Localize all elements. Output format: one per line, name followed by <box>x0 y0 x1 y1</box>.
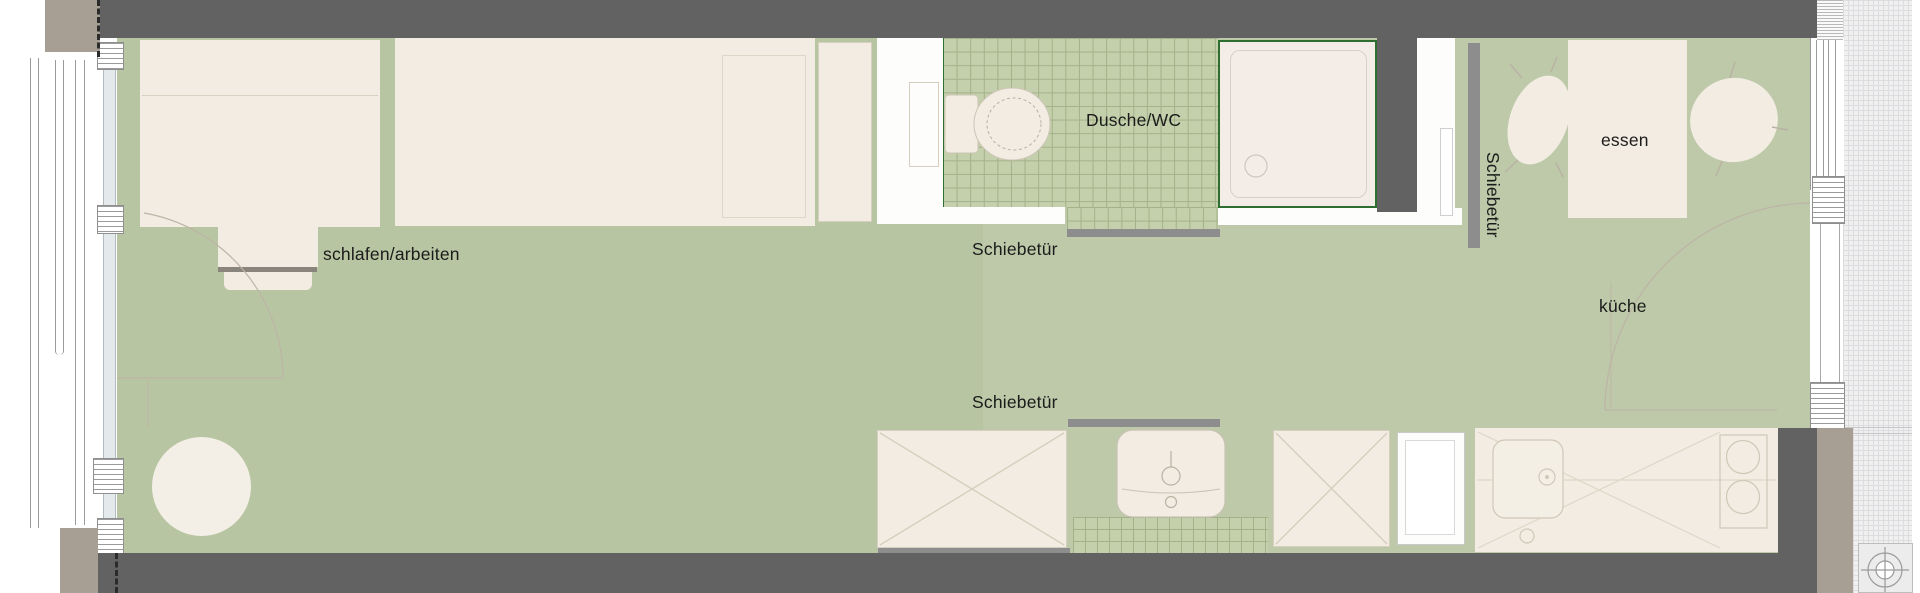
desk-edge-bar <box>218 267 317 272</box>
wall-kitchen-corner <box>1778 428 1817 593</box>
door-hardware-bottom <box>1810 382 1845 432</box>
wall-taupe-bottom-right <box>1817 428 1853 593</box>
ledge-left <box>877 207 1065 224</box>
room-label-kueche: küche <box>1599 296 1647 317</box>
desk <box>218 227 318 267</box>
window-outer-frame-left <box>30 58 39 528</box>
wall-taupe-top-left <box>45 0 100 52</box>
door-label-schiebetuer-bottom: Schiebetür <box>972 392 1058 413</box>
paving-line-1 <box>1843 427 1912 428</box>
room-label-essen: essen <box>1601 130 1649 151</box>
sliding-door-vertical <box>1468 43 1480 248</box>
window-hardware-2 <box>97 205 124 234</box>
expansion-joint-bottom <box>115 553 119 593</box>
closet-panel <box>818 42 872 222</box>
kitchen-counter <box>1475 428 1778 552</box>
sliding-door-top <box>1067 229 1220 237</box>
bathroom-tile-floor-extension <box>1067 207 1218 229</box>
wardrobe-unit-panel <box>722 55 806 218</box>
dining-table <box>1568 40 1687 218</box>
wall-taupe-bottom-left <box>60 528 98 593</box>
room-label-dusche-wc: Dusche/WC <box>1086 110 1181 131</box>
door-label-schiebetuer-vertical: Schiebetür <box>1482 152 1503 238</box>
exterior-paving <box>1843 0 1912 593</box>
door-label-schiebetuer-top: Schiebetür <box>972 239 1058 260</box>
sliding-door-pocket-rail <box>1440 128 1453 216</box>
desk-chair <box>224 272 312 290</box>
window-hardware-1 <box>97 42 124 70</box>
fridge-cabinet-door <box>1405 440 1455 535</box>
wall-bottom <box>98 553 1778 593</box>
window-hardware-3 <box>93 458 124 494</box>
bed-pillow-line <box>142 95 378 96</box>
entry-door-leaf <box>1820 222 1840 382</box>
survey-marker-pad <box>1858 543 1913 593</box>
window-mullion-2 <box>75 60 85 525</box>
wall-shower-pier <box>1377 32 1417 212</box>
bath-closet-door <box>909 82 939 167</box>
room-label-schlafen-arbeiten: schlafen/arbeiten <box>323 244 460 265</box>
window-mullion-1 <box>55 60 64 355</box>
window-right-pane-2 <box>1828 40 1836 188</box>
bed <box>140 40 380 227</box>
sliding-door-bottom <box>1068 419 1220 427</box>
expansion-joint-top <box>97 0 101 57</box>
shower-tray <box>1230 50 1367 198</box>
window-right-pane-1 <box>1816 40 1824 188</box>
window-hardware-4 <box>97 518 124 554</box>
wall-top <box>100 0 1817 38</box>
wardrobe-x-2 <box>1273 430 1390 547</box>
washbasin-tile-patch <box>1073 517 1268 553</box>
floor-plan-canvas: schlafen/arbeiten Dusche/WC Schiebetür S… <box>0 0 1920 593</box>
window-head-section <box>1817 0 1843 40</box>
wardrobe-x-1 <box>877 430 1067 548</box>
round-table <box>152 437 251 536</box>
door-hardware-top <box>1812 176 1845 224</box>
paving-line-2 <box>1843 433 1912 434</box>
